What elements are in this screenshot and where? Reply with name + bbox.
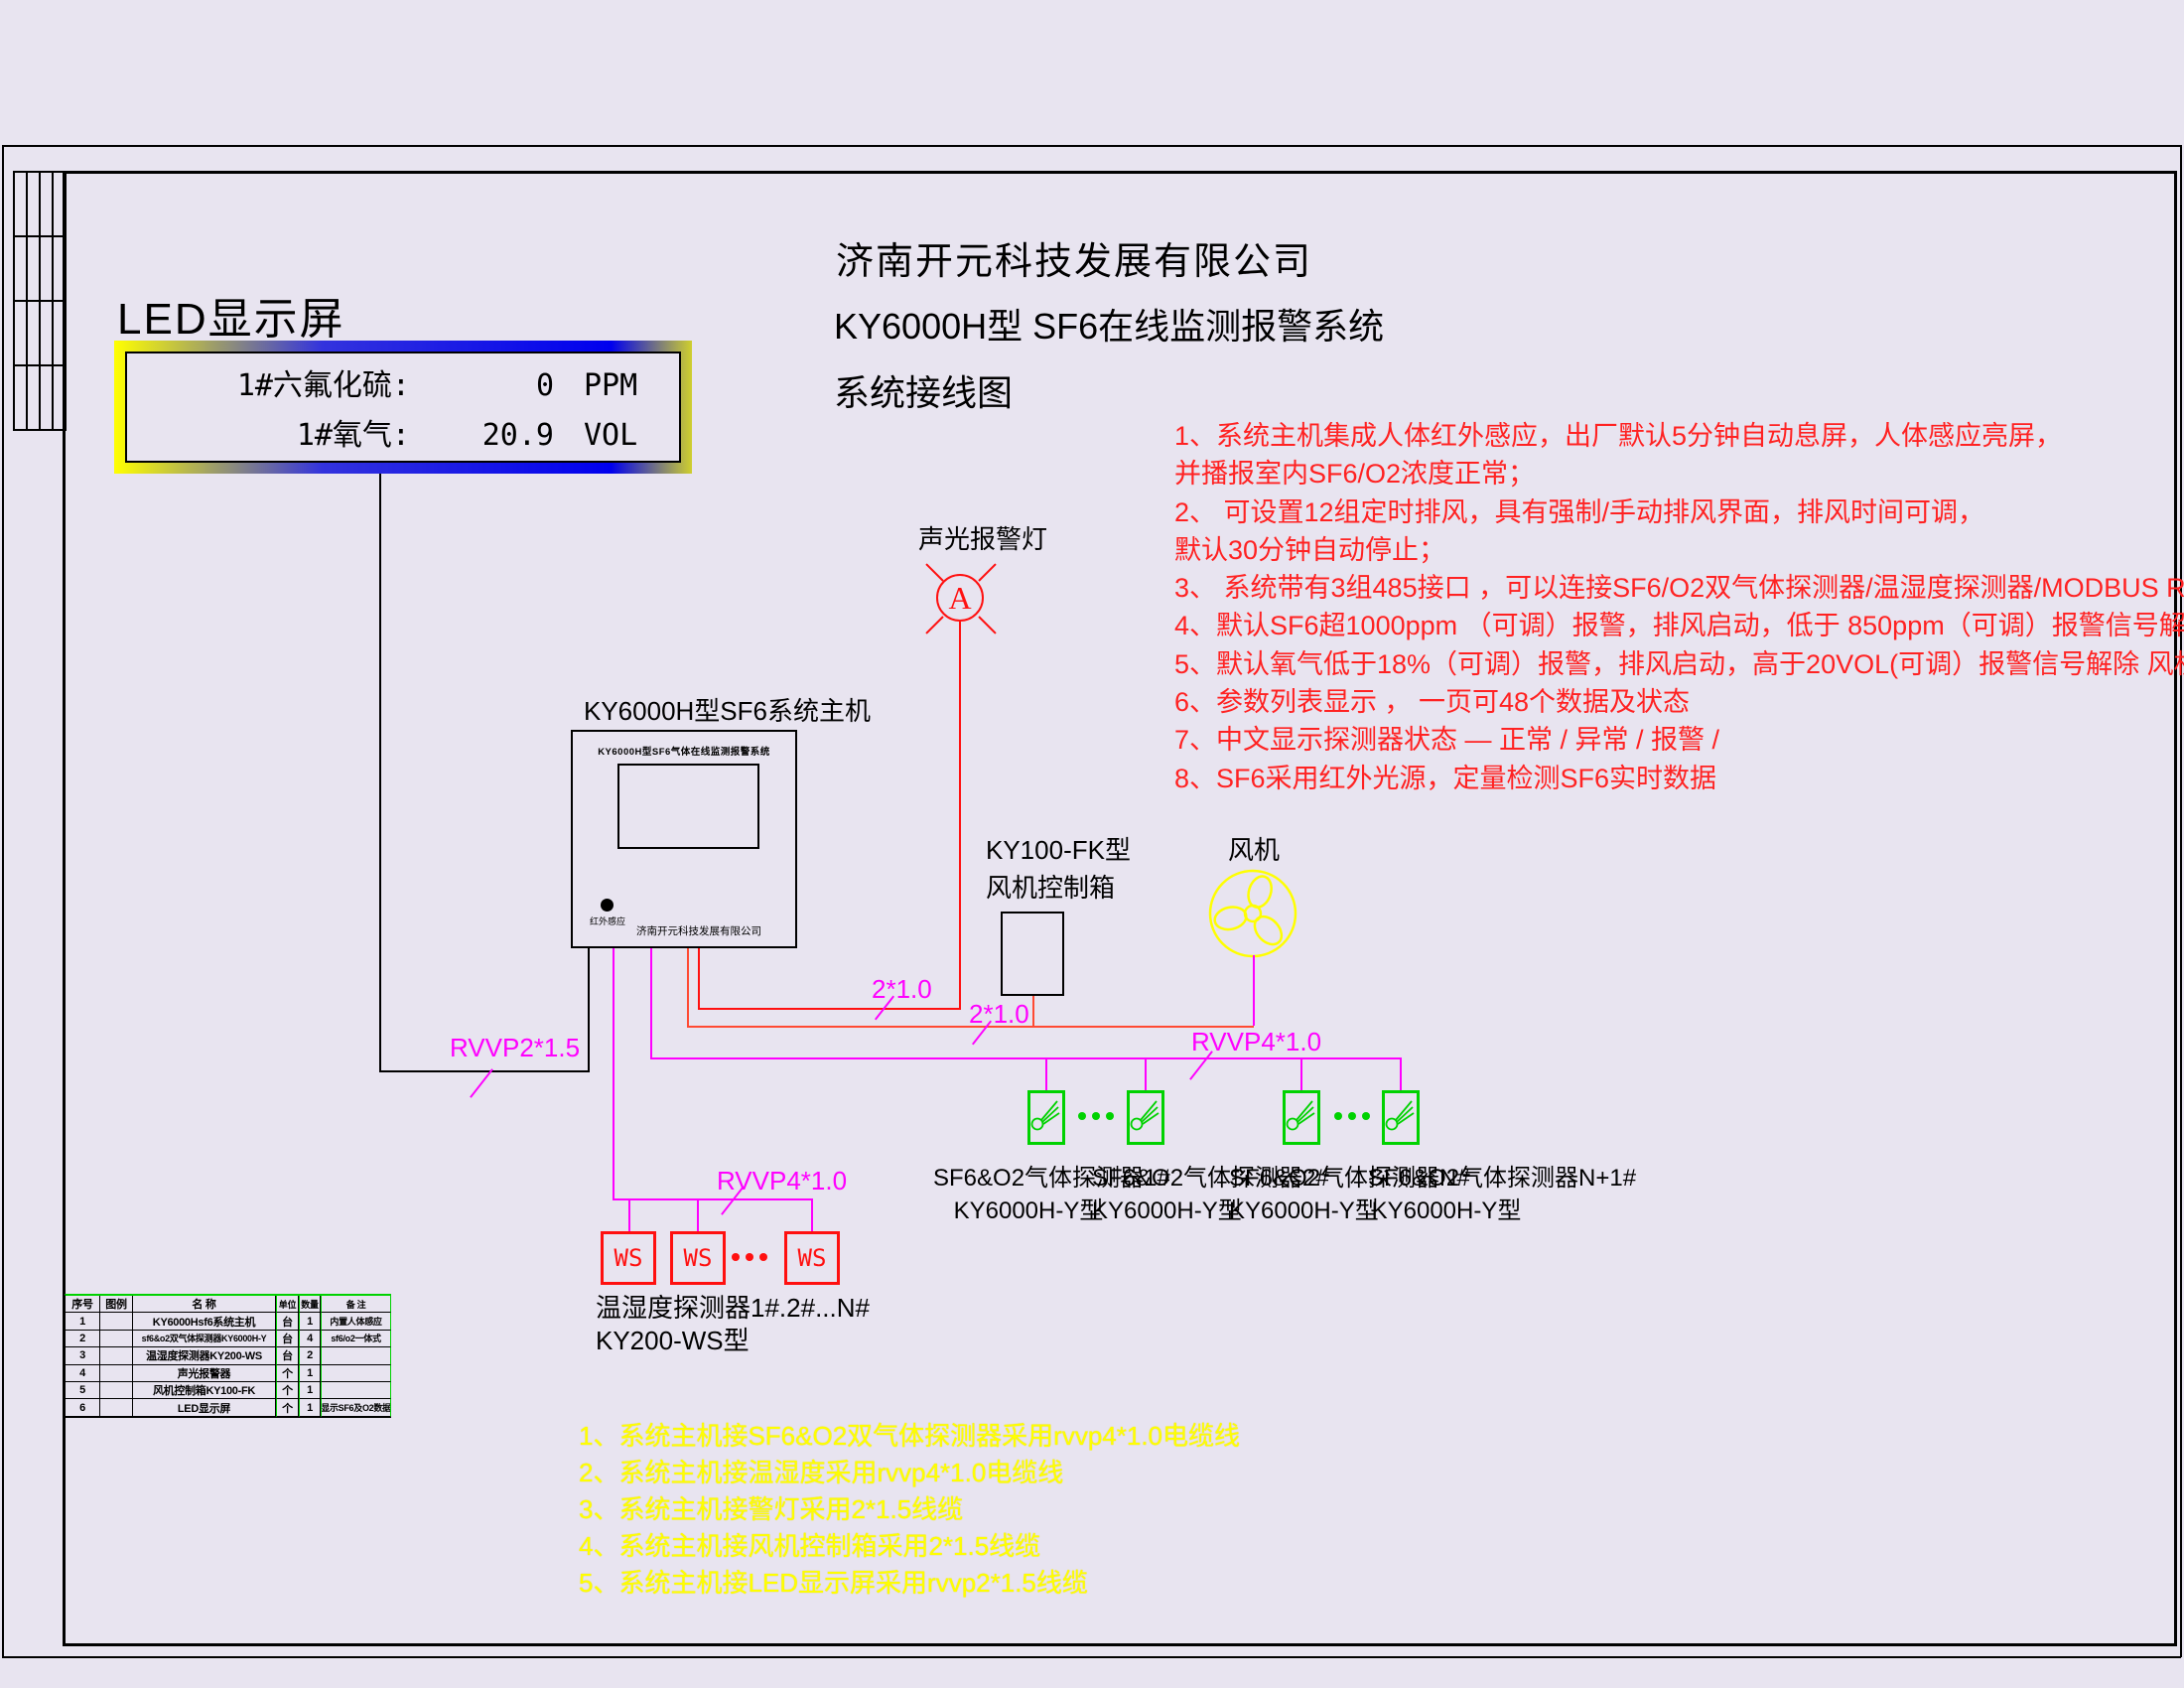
red-note-line: 6、参数列表显示 ， 一页可48个数据及状态 xyxy=(1174,683,2184,721)
red-note-line: 3、 系统带有3组485接口 ，可以连接SF6/O2双气体探测器/温湿度探测器/… xyxy=(1174,569,2184,607)
bom-cell: 声光报警器 xyxy=(133,1365,276,1382)
ws-box-label: WS xyxy=(614,1244,643,1272)
wire-segment xyxy=(379,1070,590,1072)
bom-cell: 1 xyxy=(66,1313,100,1330)
wire-segment xyxy=(1253,955,1255,1026)
wire-segment xyxy=(811,1198,813,1231)
gas-detector-icon xyxy=(1027,1090,1065,1145)
ellipsis-dots xyxy=(1078,1112,1114,1120)
yellow-note-line: 1、系统主机接SF6&O2双气体探测器采用rvvp4*1.0电缆线 xyxy=(579,1418,1240,1455)
bom-cell: 1 xyxy=(299,1382,321,1399)
ws-box-label: WS xyxy=(684,1244,713,1272)
wire-segment xyxy=(1045,1057,1047,1090)
grid-line xyxy=(15,235,65,237)
fan-control-box xyxy=(1001,912,1064,996)
wire-segment xyxy=(650,948,652,1057)
alarm-lamp-icon: A xyxy=(936,574,984,622)
detector-symbol-icon xyxy=(1130,1093,1160,1141)
cable-label-lamp: 2*1.0 xyxy=(872,974,932,1005)
infrared-sensor-dot xyxy=(601,899,614,912)
led-o2-name: 1#氧气: xyxy=(127,410,410,454)
alarm-lamp-symbol: A xyxy=(948,580,971,617)
red-note-line: 8、SF6采用红外光源，定量检测SF6实时数据 xyxy=(1174,760,2184,797)
wire-segment xyxy=(1032,996,1034,1026)
gas-detector-label: SF6&O2气体探测器N+1# KY6000H-Y型 xyxy=(1368,1162,1525,1227)
bom-cell: KY6000Hsf6系统主机 xyxy=(133,1313,276,1330)
bom-cell xyxy=(100,1347,133,1364)
led-screen-caption: LED显示屏 xyxy=(117,283,345,347)
ws-detector-icon: WS xyxy=(784,1231,840,1285)
bom-cell: 6 xyxy=(66,1399,100,1416)
main-unit-brand: 济南开元科技发展有限公司 xyxy=(636,923,761,938)
frame-reference-grid xyxy=(13,171,67,431)
gas-detector-label-line1: SF6&O2气体探测器N+1# xyxy=(1368,1162,1525,1195)
red-note-line: 2、 可设置12组定时排风，具有强制/手动排风界面，排风时间可调， xyxy=(1174,493,2184,531)
bom-cell xyxy=(321,1382,391,1399)
wire-segment xyxy=(697,1198,699,1231)
bom-header-cell: 备 注 xyxy=(321,1296,391,1313)
led-display-screen: 1#六氟化硫: 0 PPM 1#氧气: 20.9 VOL xyxy=(125,352,681,463)
bom-cell xyxy=(321,1365,391,1382)
yellow-note-line: 4、系统主机接风机控制箱采用2*1.5线缆 xyxy=(579,1528,1240,1565)
fan-caption: 风机 xyxy=(1228,830,1280,867)
bom-cell: 1 xyxy=(299,1313,321,1330)
ws-caption-line1: 温湿度探测器1#.2#...N# xyxy=(596,1288,870,1325)
bom-cell: 2 xyxy=(66,1331,100,1347)
bom-cell: 3 xyxy=(66,1347,100,1364)
alarm-lamp-caption: 声光报警灯 xyxy=(918,519,1047,556)
gas-detector-label: SF6&O2气体探测器2# KY6000H-Y型 xyxy=(1092,1162,1241,1227)
wire-segment xyxy=(698,1008,961,1010)
bom-cell: 台 xyxy=(276,1313,299,1330)
bom-cell xyxy=(100,1365,133,1382)
bom-cell: 内置人体感应 xyxy=(321,1313,391,1330)
fan-box-caption-model: KY100-FK型 xyxy=(986,830,1131,867)
sheet-outer-border-bottom xyxy=(2,1656,2181,1658)
bom-header-cell: 序号 xyxy=(66,1296,100,1313)
bom-cell: 台 xyxy=(276,1347,299,1364)
wire-segment xyxy=(1145,1057,1147,1090)
ws-detector-icon: WS xyxy=(601,1231,656,1285)
led-row-o2: 1#氧气: 20.9 VOL xyxy=(127,410,679,454)
cable-label-fanbox: 2*1.0 xyxy=(969,999,1029,1030)
gas-detector-label: SF6&O2气体探测器N# KY6000H-Y型 xyxy=(1229,1162,1373,1227)
red-note-line: 默认30分钟自动停止； xyxy=(1174,531,2184,569)
wire-segment xyxy=(1300,1057,1302,1090)
bom-cell xyxy=(100,1313,133,1330)
wire-segment xyxy=(687,948,689,1026)
yellow-note-line: 5、系统主机接LED显示屏采用rvvp2*1.5线缆 xyxy=(579,1565,1240,1602)
led-sf6-unit: PPM xyxy=(584,368,637,403)
bom-header-cell: 名 称 xyxy=(133,1296,276,1313)
wire-segment xyxy=(588,948,590,1070)
bom-cell: 4 xyxy=(66,1365,100,1382)
main-unit-panel-title: KY6000H型SF6气体在线监测报警系统 xyxy=(573,744,795,758)
bom-cell: 5 xyxy=(66,1382,100,1399)
bom-cell: 1 xyxy=(299,1365,321,1382)
gas-detector-label-line1: SF6&O2气体探测器2# xyxy=(1092,1162,1241,1195)
wire-segment xyxy=(613,1198,812,1200)
bom-cell xyxy=(100,1399,133,1416)
bom-header-cell: 数量 xyxy=(299,1296,321,1313)
gas-detector-label-line2: KY6000H-Y型 xyxy=(1092,1195,1241,1227)
cable-label-led: RVVP2*1.5 xyxy=(450,1033,580,1063)
drawing-title: 系统接线图 xyxy=(834,364,1013,416)
wire-segment xyxy=(379,474,381,1070)
red-note-line: 4、默认SF6超1000ppm （可调）报警，排风启动，低于 850ppm（可调… xyxy=(1174,607,2184,644)
main-unit-screen xyxy=(617,764,759,849)
led-sf6-name: 1#六氟化硫: xyxy=(127,360,410,404)
bom-cell: 风机控制箱KY100-FK xyxy=(133,1382,276,1399)
bom-header-cell: 单位 xyxy=(276,1296,299,1313)
ellipsis-dots xyxy=(732,1253,767,1261)
wire-segment xyxy=(650,1057,1402,1059)
ws-detector-icon: WS xyxy=(670,1231,726,1285)
bom-cell xyxy=(100,1382,133,1399)
system-title: KY6000H型 SF6在线监测报警系统 xyxy=(834,298,1384,350)
sheet-outer-border-left xyxy=(2,145,4,1657)
wire-segment xyxy=(959,622,961,1008)
bom-cell: sf6/o2一体式 xyxy=(321,1331,391,1347)
wire-segment xyxy=(698,948,700,1008)
bom-cell: 台 xyxy=(276,1331,299,1347)
detector-symbol-icon xyxy=(1286,1093,1316,1141)
main-unit-caption: KY6000H型SF6系统主机 xyxy=(584,691,871,728)
wire-segment xyxy=(1400,1057,1402,1090)
gas-detector-icon xyxy=(1382,1090,1420,1145)
ellipsis-dots xyxy=(1334,1112,1370,1120)
bom-table: 序号 图例 名 称 单位 数量 备 注 1 KY6000Hsf6系统主机 台 1… xyxy=(65,1294,391,1418)
red-note-line: 并播报室内SF6/O2浓度正常； xyxy=(1174,455,2184,492)
led-o2-value: 20.9 xyxy=(410,418,554,453)
bom-cell: LED显示屏 xyxy=(133,1399,276,1416)
wire-segment xyxy=(613,948,614,1198)
grid-line xyxy=(15,364,65,366)
gas-detector-label-line2: KY6000H-Y型 xyxy=(1368,1195,1525,1227)
infrared-sensor-label: 红外感应 xyxy=(590,914,625,927)
ws-caption-line2: KY200-WS型 xyxy=(596,1321,750,1357)
red-note-line: 1、系统主机集成人体红外感应，出厂默认5分钟自动息屏，人体感应亮屏， xyxy=(1174,417,2184,455)
led-row-sf6: 1#六氟化硫: 0 PPM xyxy=(127,360,679,404)
led-display-panel: 1#六氟化硫: 0 PPM 1#氧气: 20.9 VOL xyxy=(114,341,692,474)
red-notes-block: 1、系统主机集成人体红外感应，出厂默认5分钟自动息屏，人体感应亮屏， 并播报室内… xyxy=(1174,417,2184,797)
yellow-notes-block: 1、系统主机接SF6&O2双气体探测器采用rvvp4*1.0电缆线 2、系统主机… xyxy=(579,1418,1240,1602)
led-sf6-value: 0 xyxy=(410,368,554,403)
cable-label-ws-bus: RVVP4*1.0 xyxy=(717,1166,847,1196)
bom-header-cell: 图例 xyxy=(100,1296,133,1313)
bom-cell: sf6&o2双气体探测器KY6000H-Y xyxy=(133,1331,276,1347)
ws-box-label: WS xyxy=(798,1244,827,1272)
detector-symbol-icon xyxy=(1385,1093,1416,1141)
bom-cell: 显示SF6及O2数据 xyxy=(321,1399,391,1416)
red-note-line: 7、中文显示探测器状态 — 正常 / 异常 / 报警 / xyxy=(1174,721,2184,759)
grid-line xyxy=(15,300,65,302)
wire-segment xyxy=(628,1198,630,1231)
fan-box-caption-name: 风机控制箱 xyxy=(986,868,1115,905)
sheet-outer-border-right xyxy=(2180,145,2182,1657)
company-title: 济南开元科技发展有限公司 xyxy=(836,230,1312,285)
bom-cell xyxy=(321,1347,391,1364)
gas-detector-label-line2: KY6000H-Y型 xyxy=(1229,1195,1373,1227)
led-o2-unit: VOL xyxy=(584,418,637,453)
bom-cell: 个 xyxy=(276,1399,299,1416)
sheet-outer-border-top xyxy=(2,145,2181,147)
red-note-line: 5、默认氧气低于18%（可调）报警，排风启动，高于20VOL(可调）报警信号解除… xyxy=(1174,645,2184,683)
gas-detector-icon xyxy=(1283,1090,1320,1145)
gas-detector-icon xyxy=(1127,1090,1164,1145)
wiring-diagram-sheet: { "colors": { "background": "#e8e4f0", "… xyxy=(0,0,2184,1688)
fan-icon xyxy=(1206,867,1299,960)
bom-cell: 个 xyxy=(276,1365,299,1382)
bom-cell: 2 xyxy=(299,1347,321,1364)
detector-symbol-icon xyxy=(1030,1093,1061,1141)
main-unit-box: KY6000H型SF6气体在线监测报警系统 红外感应 济南开元科技发展有限公司 xyxy=(571,730,797,948)
gas-detector-label-line1: SF6&O2气体探测器N# xyxy=(1229,1162,1373,1195)
yellow-note-line: 3、系统主机接警灯采用2*1.5线缆 xyxy=(579,1491,1240,1528)
bom-cell: 1 xyxy=(299,1399,321,1416)
yellow-note-line: 2、系统主机接温湿度采用rvvp4*1.0电缆线 xyxy=(579,1455,1240,1491)
bom-cell: 个 xyxy=(276,1382,299,1399)
bom-cell: 4 xyxy=(299,1331,321,1347)
bom-cell xyxy=(100,1331,133,1347)
bom-cell: 温湿度探测器KY200-WS xyxy=(133,1347,276,1364)
